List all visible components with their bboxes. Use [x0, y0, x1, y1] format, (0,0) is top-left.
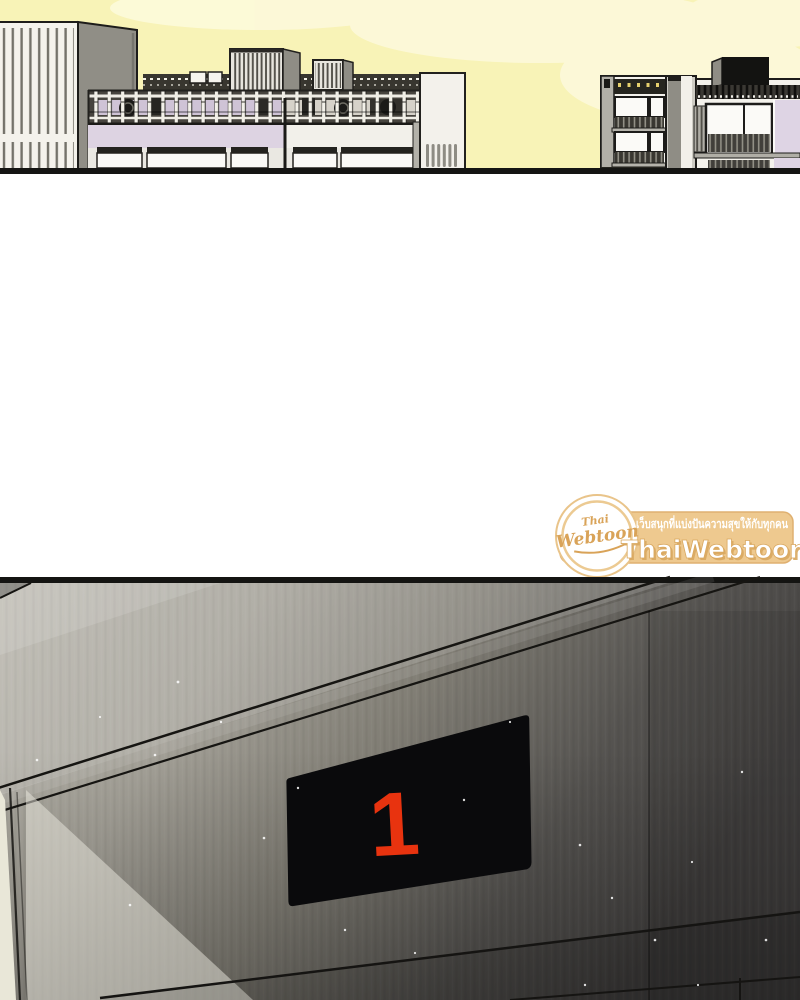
comic-artwork: Thai Webtoon เว็บสนุกที่แบ่งปันความสุขให… — [0, 0, 800, 1000]
floor-number: 1 — [367, 774, 422, 876]
thaiwebtoon-watermark: Thai Webtoon เว็บสนุกที่แบ่งปันความสุขให… — [553, 495, 800, 577]
panel-border — [0, 168, 800, 174]
rooftop-box — [722, 57, 769, 85]
elevator-panel: 1 — [0, 577, 800, 1000]
webtoon-page: Thai Webtoon เว็บสนุกที่แบ่งปันความสุขให… — [0, 0, 800, 1000]
watermark-brand: ThaiWebtoon — [621, 535, 800, 564]
roof-louver-box-small — [313, 60, 353, 90]
watermark-tagline: เว็บสนุกที่แบ่งปันความสุขให้กับทุกคน — [636, 515, 789, 532]
apartment-a — [601, 76, 668, 172]
roof-louver-box-large — [230, 49, 300, 95]
white-tower — [413, 73, 465, 169]
gray-tower — [666, 76, 696, 171]
rooftop-box-side — [712, 58, 722, 87]
roof-vent — [208, 72, 222, 83]
roof-vent — [190, 72, 206, 83]
skyline-panel — [0, 0, 800, 174]
